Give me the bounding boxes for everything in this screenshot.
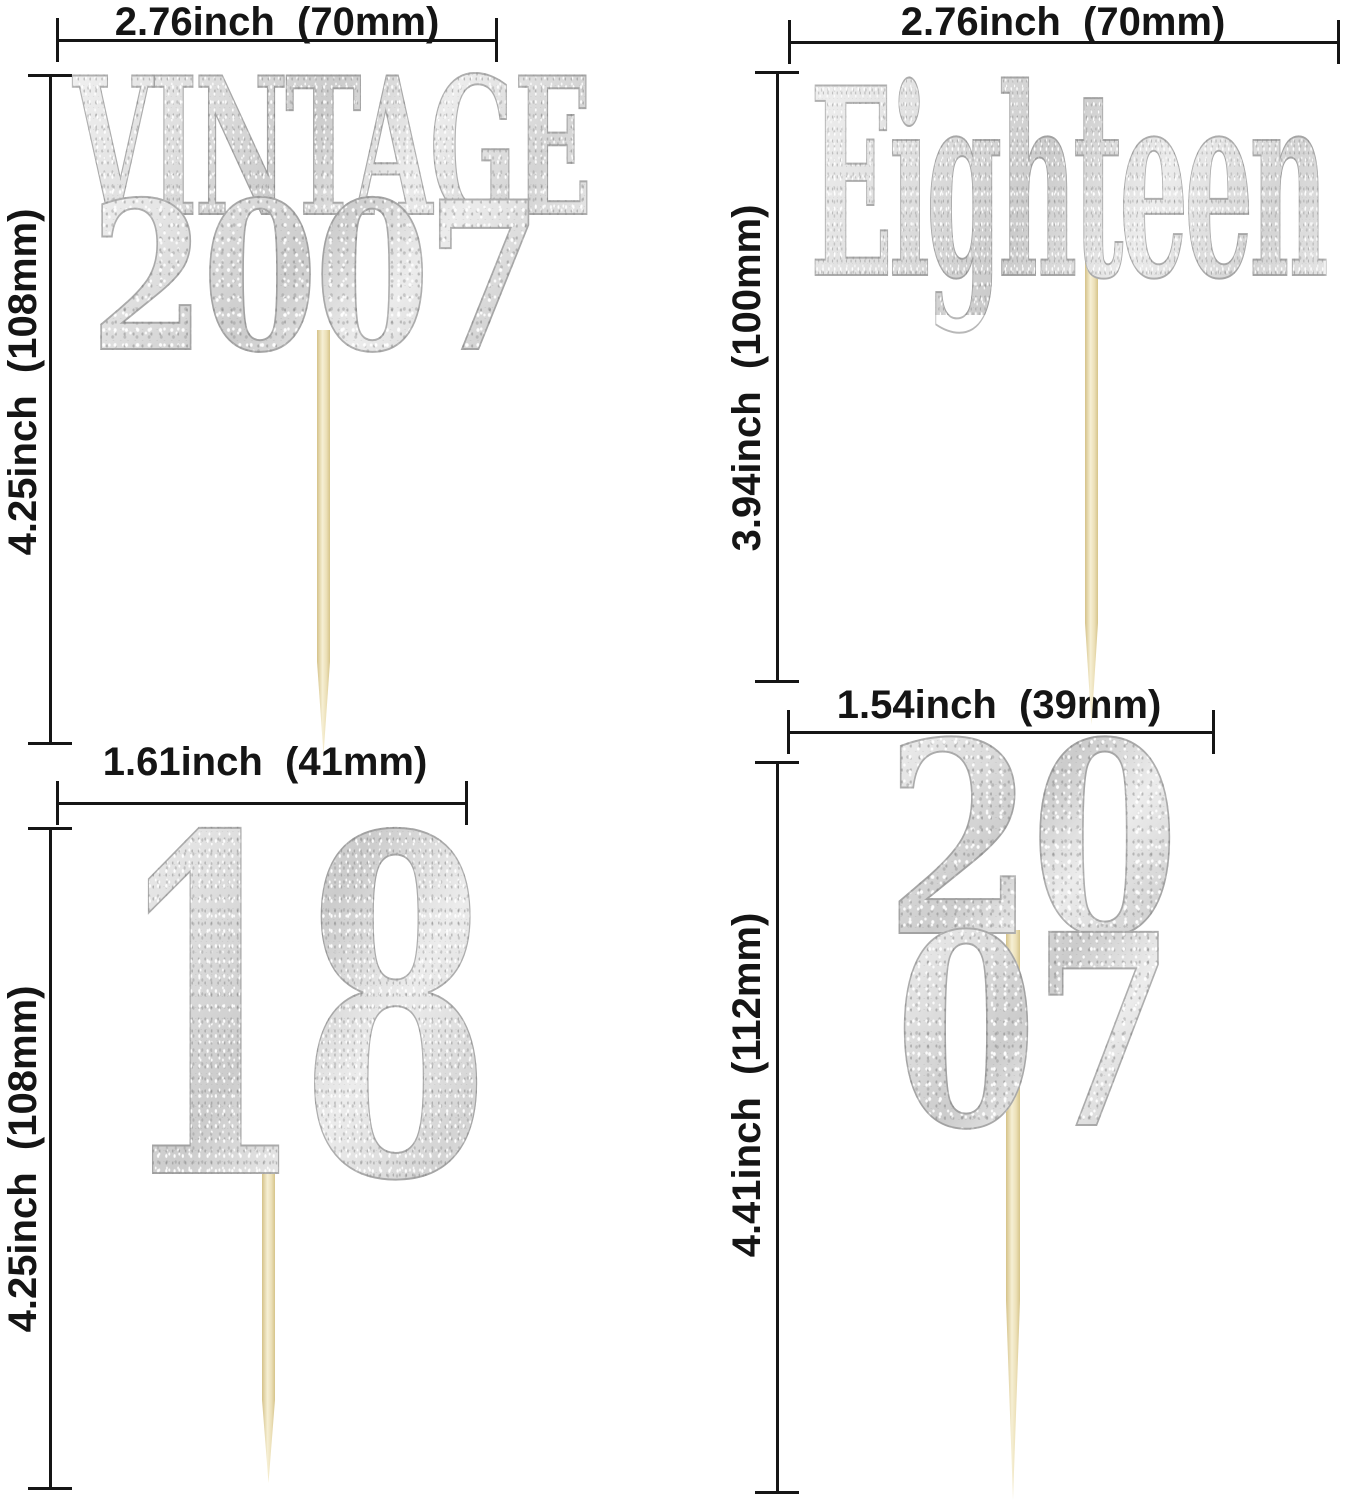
height-dimension-tick-bottom xyxy=(755,1491,799,1494)
sign-text-18: 18 xyxy=(115,777,486,1242)
width-dimension-tick-left xyxy=(787,710,790,754)
width-dimension-tick-right xyxy=(1212,710,1215,754)
product-dimension-image: 2.76inch (70mm) 4.25inch (108mm) VINTAGE… xyxy=(0,0,1347,1500)
height-dimension-tick-top xyxy=(755,761,799,764)
height-dimension-line xyxy=(776,762,779,1493)
sign-text-eighteen: Eighteen xyxy=(810,55,1324,315)
sign-text-07: 07 xyxy=(895,900,1171,1165)
height-dimension-label: 4.41inch (112mm) xyxy=(727,913,767,1258)
sign-text-2007: 2007 xyxy=(90,176,539,381)
